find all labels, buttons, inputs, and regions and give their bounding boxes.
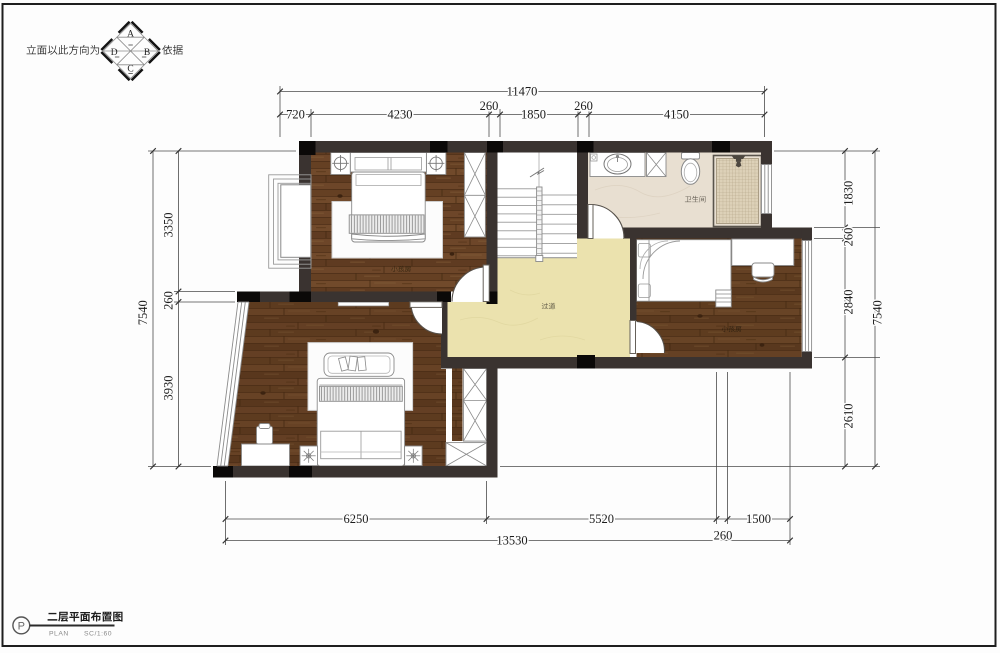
svg-text:B: B [144,48,150,58]
svg-text:11470: 11470 [507,85,538,99]
svg-text:5520: 5520 [589,512,614,526]
svg-text:D: D [111,48,118,58]
svg-text:260: 260 [714,529,733,543]
svg-text:1830: 1830 [842,181,856,206]
svg-text:260: 260 [574,99,593,113]
svg-text:2840: 2840 [842,290,856,315]
svg-text:C: C [127,65,133,75]
svg-text:13530: 13530 [496,534,527,548]
svg-text:2610: 2610 [842,404,856,429]
svg-text:260: 260 [842,228,856,247]
svg-text:260: 260 [162,291,176,310]
svg-text:4150: 4150 [664,108,689,122]
svg-text:7540: 7540 [871,300,885,325]
svg-text:A: A [127,30,134,40]
svg-text:3350: 3350 [162,213,176,238]
svg-text:7540: 7540 [136,300,150,325]
svg-text:SC/1:60: SC/1:60 [84,631,112,638]
svg-text:3930: 3930 [162,376,176,401]
svg-text:1850: 1850 [521,108,546,122]
svg-text:4230: 4230 [388,108,413,122]
svg-text:PLAN: PLAN [49,631,69,638]
svg-text:260: 260 [480,99,499,113]
svg-text:6250: 6250 [344,512,369,526]
svg-text:720: 720 [286,108,305,122]
svg-text:1500: 1500 [746,512,771,526]
svg-text:P: P [18,621,25,633]
